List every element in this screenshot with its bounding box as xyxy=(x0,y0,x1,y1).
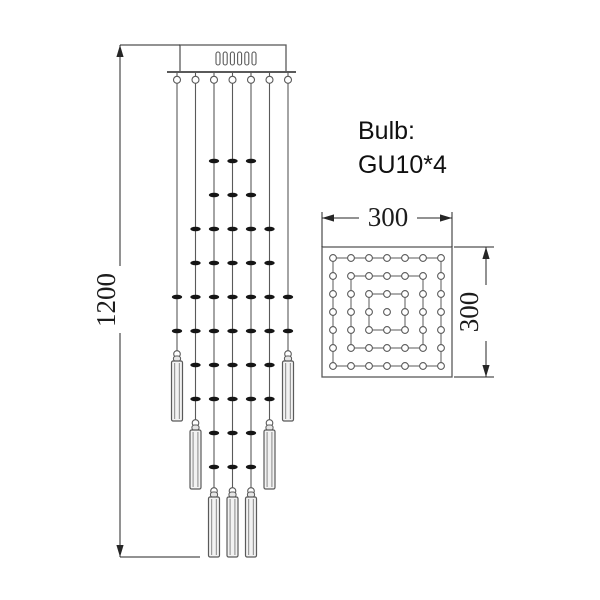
bulb-dot xyxy=(420,363,427,370)
crystal-bead xyxy=(227,431,237,436)
crystal-bead xyxy=(209,397,219,402)
bulb-dot xyxy=(438,291,445,298)
bulb-dot xyxy=(420,291,427,298)
crystal-bead xyxy=(190,397,200,402)
crystal-bead xyxy=(227,363,237,368)
crystal-bead xyxy=(283,329,293,334)
crystal-bead xyxy=(209,295,219,300)
pendant-body xyxy=(209,497,220,557)
crystal-bead xyxy=(227,159,237,164)
bulb-dot xyxy=(366,273,373,280)
dimension-arrow xyxy=(482,365,489,377)
bulb-dot xyxy=(402,255,409,262)
bulb-dot xyxy=(348,327,355,334)
bulb-dot xyxy=(366,327,373,334)
crystal-bead xyxy=(246,193,256,198)
bulb-dot xyxy=(384,309,391,316)
crystal-bead xyxy=(246,295,256,300)
bulb-dot xyxy=(330,273,337,280)
bulb-dot xyxy=(384,291,391,298)
bulb-dot xyxy=(384,255,391,262)
bulb-dot xyxy=(420,273,427,280)
crystal-bead xyxy=(246,431,256,436)
crystal-bead xyxy=(246,329,256,334)
bulb-dot xyxy=(348,291,355,298)
pendant-body xyxy=(246,497,257,557)
dimension-arrow xyxy=(116,45,123,57)
bulb-dot xyxy=(366,255,373,262)
bulb-dot xyxy=(348,363,355,370)
crystal-bead xyxy=(246,159,256,164)
hanging-hook xyxy=(266,76,273,83)
front-view xyxy=(167,45,296,557)
bulb-dot xyxy=(348,345,355,352)
crystal-bead xyxy=(227,261,237,266)
bulb-dot xyxy=(330,309,337,316)
crystal-bead xyxy=(209,363,219,368)
crystal-bead xyxy=(209,261,219,266)
ceiling-canopy xyxy=(180,45,286,72)
crystal-bead xyxy=(209,227,219,232)
bulb-dot xyxy=(384,327,391,334)
crystal-bead xyxy=(190,261,200,266)
hanging-hook xyxy=(192,76,199,83)
bulb-dot xyxy=(420,255,427,262)
crystal-bead xyxy=(264,397,274,402)
hanging-hook xyxy=(229,76,236,83)
crystal-bead xyxy=(246,397,256,402)
bulb-dot xyxy=(420,309,427,316)
crystal-bead xyxy=(227,465,237,470)
hanging-hook xyxy=(211,76,218,83)
bulb-dot xyxy=(348,255,355,262)
bulb-dot xyxy=(330,327,337,334)
bulb-dot xyxy=(438,273,445,280)
pendant-body xyxy=(190,430,201,489)
hanging-hook xyxy=(174,76,181,83)
bulb-dot xyxy=(402,327,409,334)
crystal-bead xyxy=(209,329,219,334)
bulb-dot xyxy=(420,327,427,334)
bulb-dot xyxy=(330,345,337,352)
crystal-bead xyxy=(264,261,274,266)
bulb-dot xyxy=(366,309,373,316)
bulb-dot xyxy=(348,309,355,316)
bulb-spec-line-2: GU10*4 xyxy=(358,148,447,182)
bulb-dot xyxy=(330,255,337,262)
crystal-bead xyxy=(264,363,274,368)
bulb-dot xyxy=(438,327,445,334)
crystal-bead xyxy=(209,159,219,164)
crystal-bead xyxy=(227,295,237,300)
crystal-bead xyxy=(246,227,256,232)
pendant-body xyxy=(264,430,275,489)
bulb-spec-line-1: Bulb: xyxy=(358,114,447,148)
crystal-bead xyxy=(190,329,200,334)
bulb-dot xyxy=(402,291,409,298)
hanging-hook xyxy=(248,76,255,83)
crystal-bead xyxy=(190,295,200,300)
bulb-dot xyxy=(438,363,445,370)
dimension-arrow xyxy=(322,214,334,221)
bulb-dot xyxy=(366,345,373,352)
pendant-body xyxy=(227,497,238,557)
crystal-bead xyxy=(209,431,219,436)
pendant-body xyxy=(172,361,183,421)
crystal-bead xyxy=(227,329,237,334)
bulb-dot xyxy=(384,345,391,352)
crystal-bead xyxy=(246,465,256,470)
crystal-bead xyxy=(172,329,182,334)
bulb-dot xyxy=(402,309,409,316)
crystal-bead xyxy=(264,295,274,300)
bulb-dot xyxy=(438,255,445,262)
crystal-bead xyxy=(190,227,200,232)
bulb-dot xyxy=(384,273,391,280)
crystal-bead xyxy=(227,193,237,198)
width-dimension-label: 300 xyxy=(353,203,423,231)
crystal-bead xyxy=(209,465,219,470)
crystal-bead xyxy=(246,261,256,266)
crystal-bead xyxy=(264,227,274,232)
height-dimension-label: 1200 xyxy=(92,255,120,345)
bulb-dot xyxy=(384,363,391,370)
crystal-bead xyxy=(227,397,237,402)
bulb-dot xyxy=(402,345,409,352)
crystal-bead xyxy=(264,329,274,334)
bulb-dot xyxy=(348,273,355,280)
dimension-arrow xyxy=(482,247,489,259)
depth-dimension-label: 300 xyxy=(455,277,483,347)
dimension-arrow xyxy=(116,545,123,557)
bulb-dot xyxy=(366,363,373,370)
bulb-dot xyxy=(420,345,427,352)
bulb-dot xyxy=(330,363,337,370)
technical-drawing-page: 1200 Bulb: GU10*4 300 300 xyxy=(0,0,600,600)
crystal-bead xyxy=(283,295,293,300)
crystal-bead xyxy=(246,363,256,368)
dimension-arrow xyxy=(440,214,452,221)
crystal-bead xyxy=(172,295,182,300)
drawing-svg xyxy=(0,0,600,600)
bulb-dot xyxy=(366,291,373,298)
crystal-bead xyxy=(190,363,200,368)
top-view xyxy=(322,247,452,377)
bulb-dot xyxy=(330,291,337,298)
crystal-bead xyxy=(209,193,219,198)
bulb-dot xyxy=(438,345,445,352)
bulb-dot xyxy=(438,309,445,316)
pendant-body xyxy=(283,361,294,421)
bulb-dot xyxy=(402,363,409,370)
crystal-bead xyxy=(227,227,237,232)
bulb-spec: Bulb: GU10*4 xyxy=(358,114,447,182)
bulb-dot xyxy=(402,273,409,280)
hanging-hook xyxy=(285,76,292,83)
